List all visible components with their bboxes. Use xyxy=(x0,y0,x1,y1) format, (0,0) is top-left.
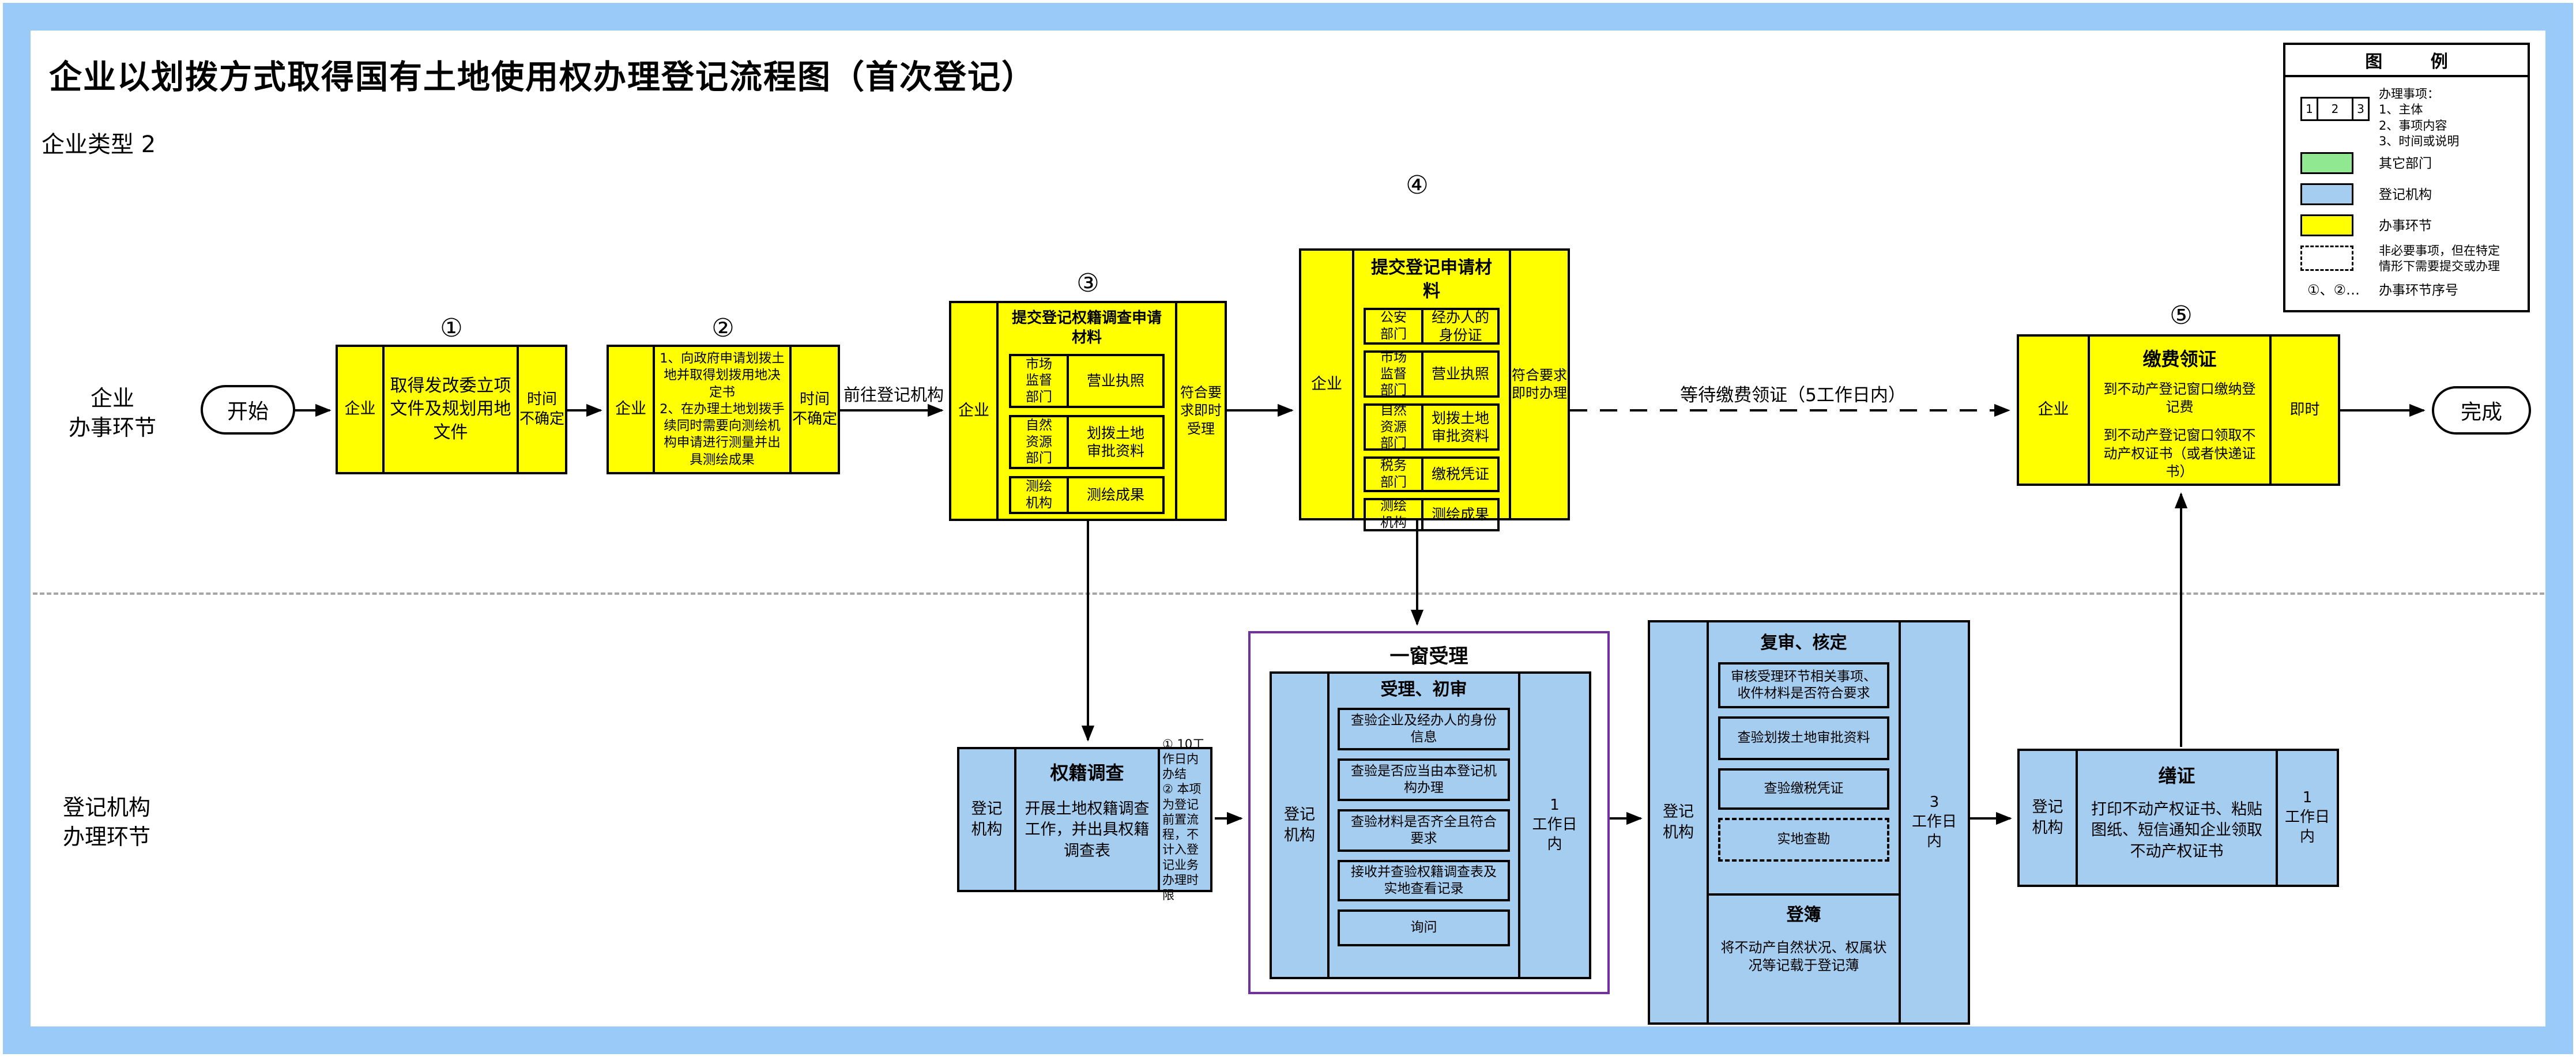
acceptance-item-materials: 查验材料是否齐全且符合要求 xyxy=(1338,809,1510,852)
survey-text: 开展土地权籍调查工作，并出具权籍调查表 xyxy=(1023,799,1151,862)
acceptance-item-inquiry: 询问 xyxy=(1338,909,1510,946)
step4-row3-doc: 划拨土地 审批资料 xyxy=(1423,406,1497,448)
legend-glyph-numbers: ①、②… xyxy=(2307,281,2360,299)
review-time: 3 工作日 内 xyxy=(1901,622,1968,1022)
step3-box: 企业 提交登记权籍调查申请材料 市场 监督 部门 营业执照 自然 资源 部门 划… xyxy=(949,301,1227,521)
legend-label-other-depts: 其它部门 xyxy=(2379,156,2432,172)
flowchart-canvas: 企业以划拨方式取得国有土地使用权办理登记流程图（首次登记） 企业类型 2 企业 … xyxy=(0,0,2576,1057)
cert-content: 缮证 打印不动产权证书、粘贴图纸、短信通知企业领取不动产权证书 xyxy=(2078,751,2278,885)
step3-row2-doc: 划拨土地 审批资料 xyxy=(1069,417,1162,467)
step5-line1: 到不动产登记窗口缴纳登记费 xyxy=(2097,380,2262,416)
cert-actor: 登记 机构 xyxy=(2020,751,2078,885)
acceptance-item-survey-table: 接收并查验权籍调查表及实地查看记录 xyxy=(1338,860,1510,901)
survey-note: ① 10工作日内办结 ② 本项为登记前置流程，不计入登记业务办理时限 xyxy=(1160,749,1210,890)
step4-row2-doc: 营业执照 xyxy=(1423,353,1497,395)
step1-time: 时间 不确定 xyxy=(519,347,565,472)
step3-row3-dept: 测绘 机构 xyxy=(1011,478,1069,512)
step2-content: 1、向政府申请划拨土地并取得划拨用地决定书 2、在办理土地划拨手续同时需要向测绘… xyxy=(655,347,792,472)
legend-sample-box: 1 2 3 xyxy=(2300,97,2370,121)
legend-swatch-green xyxy=(2300,152,2353,174)
survey-content: 权籍调查 开展土地权籍调查工作，并出具权籍调查表 xyxy=(1016,749,1160,890)
start-terminal: 开始 xyxy=(201,385,295,435)
step4-number: ④ xyxy=(1388,171,1446,200)
step5-box: 企业 缴费领证 到不动产登记窗口缴纳登记费 到不动产登记窗口领取不动产权证书（或… xyxy=(2017,334,2340,486)
step4-row-tax-receipt: 税务 部门 缴税凭证 xyxy=(1364,456,1500,492)
book-text: 将不动产自然状况、权属状况等记载于登记薄 xyxy=(1718,939,1889,975)
legend-header: 图 例 xyxy=(2285,45,2528,77)
legend-swatch-yellow xyxy=(2300,214,2353,236)
step4-row-survey-result: 测绘 机构 测绘成果 xyxy=(1364,498,1500,531)
step1-content: 取得发改委立项文件及规划用地文件 xyxy=(385,347,519,472)
cert-box: 登记 机构 缮证 打印不动产权证书、粘贴图纸、短信通知企业领取不动产权证书 1 … xyxy=(2017,749,2339,887)
acceptance-box: 登记 机构 受理、初审 查验企业及经办人的身份信息 查验是否应当由本登记机构办理… xyxy=(1270,671,1591,979)
survey-title: 权籍调查 xyxy=(1023,758,1151,785)
survey-actor: 登记 机构 xyxy=(959,749,1016,890)
step3-title: 提交登记权籍调查申请材料 xyxy=(1009,309,1165,348)
review-item-site-inspection: 实地查勘 xyxy=(1718,818,1889,862)
book-title: 登簿 xyxy=(1718,904,1889,927)
step3-row3-doc: 测绘成果 xyxy=(1069,478,1162,512)
legend: 图 例 1 2 3 办理事项： 1、主体 2、事项内容 3、时间或说明 其它部门… xyxy=(2283,43,2530,312)
step4-actor: 企业 xyxy=(1301,251,1354,518)
step4-title: 提交登记申请材料 xyxy=(1364,256,1500,303)
step5-title: 缴费领证 xyxy=(2097,345,2262,371)
book-section: 登簿 将不动产自然状况、权属状况等记载于登记薄 xyxy=(1709,893,1899,1022)
review-item-check-acceptance: 审核受理环节相关事项、收件材料是否符合要求 xyxy=(1718,662,1889,708)
cert-title: 缮证 xyxy=(2086,761,2268,788)
step5-time: 即时 xyxy=(2272,337,2338,484)
step4-row5-doc: 测绘成果 xyxy=(1423,500,1497,529)
review-item-land-approval: 查验划拨土地审批资料 xyxy=(1718,716,1889,760)
edge-label-to-registry: 前往登记机构 xyxy=(819,382,969,406)
acceptance-item-identity: 查验企业及经办人的身份信息 xyxy=(1338,708,1510,750)
step4-row2-dept: 市场 监督 部门 xyxy=(1366,353,1423,395)
review-actor: 登记 机构 xyxy=(1650,622,1709,1022)
step3-row1-doc: 营业执照 xyxy=(1069,356,1162,406)
step4-row-id-card: 公安 部门 经办人的 身份证 xyxy=(1364,308,1500,345)
step1-number: ① xyxy=(423,314,480,343)
legend-label-step-numbers: 办事环节序号 xyxy=(2379,282,2458,299)
step3-row-business-license: 市场 监督 部门 营业执照 xyxy=(1009,354,1165,408)
end-terminal: 完成 xyxy=(2432,386,2531,435)
legend-sample-note: 办理事项： 1、主体 2、事项内容 3、时间或说明 xyxy=(2379,86,2459,149)
legend-sample-1: 1 xyxy=(2302,99,2318,119)
review-title: 复审、核定 xyxy=(1718,632,1889,655)
legend-swatch-blue xyxy=(2300,183,2353,205)
acceptance-time: 1 工作日 内 xyxy=(1520,674,1589,977)
step4-row4-doc: 缴税凭证 xyxy=(1423,459,1497,490)
step3-row2-dept: 自然 资源 部门 xyxy=(1011,417,1069,467)
review-section: 复审、核定 审核受理环节相关事项、收件材料是否符合要求 查验划拨土地审批资料 查… xyxy=(1709,622,1899,893)
step3-time: 符合要 求即时 受理 xyxy=(1177,303,1225,519)
step4-row3-dept: 自然 资源 部门 xyxy=(1366,406,1423,448)
step2-box: 企业 1、向政府申请划拨土地并取得划拨用地决定书 2、在办理土地划拨手续同时需要… xyxy=(607,345,840,474)
legend-label-registry: 登记机构 xyxy=(2379,187,2432,203)
step4-row1-doc: 经办人的 身份证 xyxy=(1423,310,1497,342)
one-window-container: 一窗受理 登记 机构 受理、初审 查验企业及经办人的身份信息 查验是否应当由本登… xyxy=(1248,631,1610,994)
step5-line2: 到不动产登记窗口领取不动产权证书（或者快递证书） xyxy=(2097,426,2262,481)
step4-row-land-approval: 自然 资源 部门 划拨土地 审批资料 xyxy=(1364,403,1500,451)
step4-row5-dept: 测绘 机构 xyxy=(1366,500,1423,529)
acceptance-content: 受理、初审 查验企业及经办人的身份信息 查验是否应当由本登记机构办理 查验材料是… xyxy=(1330,674,1520,977)
step1-box: 企业 取得发改委立项文件及规划用地文件 时间 不确定 xyxy=(336,345,567,474)
acceptance-title: 受理、初审 xyxy=(1338,678,1510,702)
edge-label-wait-cert: 等待缴费领证（5工作日内） xyxy=(1620,380,1966,406)
step4-row-business-license: 市场 监督 部门 营业执照 xyxy=(1364,350,1500,398)
step1-actor: 企业 xyxy=(338,347,385,472)
survey-box: 登记 机构 权籍调查 开展土地权籍调查工作，并出具权籍调查表 ① 10工作日内办… xyxy=(957,747,1212,892)
step4-box: 企业 提交登记申请材料 公安 部门 经办人的 身份证 市场 监督 部门 营业执照… xyxy=(1299,248,1570,520)
step3-materials: 提交登记权籍调查申请材料 市场 监督 部门 营业执照 自然 资源 部门 划拨土地… xyxy=(999,303,1177,519)
legend-sample-2: 2 xyxy=(2318,99,2353,119)
step3-number: ③ xyxy=(1059,269,1117,298)
legend-sample-3: 3 xyxy=(2353,99,2368,119)
step4-materials: 提交登记申请材料 公安 部门 经办人的 身份证 市场 监督 部门 营业执照 自然… xyxy=(1354,251,1511,518)
step4-row1-dept: 公安 部门 xyxy=(1366,310,1423,342)
legend-swatch-dashed xyxy=(2300,246,2353,271)
one-window-label: 一窗受理 xyxy=(1251,633,1607,669)
review-item-tax-receipt: 查验缴税凭证 xyxy=(1718,768,1889,810)
acceptance-item-jurisdiction: 查验是否应当由本登记机构办理 xyxy=(1338,758,1510,801)
cert-text: 打印不动产权证书、粘贴图纸、短信通知企业领取不动产权证书 xyxy=(2086,799,2268,862)
step2-time: 时间 不确定 xyxy=(792,347,838,472)
step5-actor: 企业 xyxy=(2019,337,2090,484)
acceptance-actor: 登记 机构 xyxy=(1272,674,1330,977)
step4-row4-dept: 税务 部门 xyxy=(1366,459,1423,490)
cert-time: 1 工作日 内 xyxy=(2278,751,2337,885)
step5-number: ⑤ xyxy=(2152,301,2210,330)
legend-label-steps: 办事环节 xyxy=(2379,218,2432,235)
step3-row-land-approval: 自然 资源 部门 划拨土地 审批资料 xyxy=(1009,415,1165,469)
legend-label-optional: 非必要事项，但在特定 情形下需要提交或办理 xyxy=(2379,243,2500,275)
step3-actor: 企业 xyxy=(951,303,999,519)
step3-row-survey-result: 测绘 机构 测绘成果 xyxy=(1009,476,1165,514)
step4-time: 符合要求 即时办理 xyxy=(1511,251,1568,518)
step5-content: 缴费领证 到不动产登记窗口缴纳登记费 到不动产登记窗口领取不动产权证书（或者快递… xyxy=(2090,337,2272,484)
review-box: 登记 机构 复审、核定 审核受理环节相关事项、收件材料是否符合要求 查验划拨土地… xyxy=(1648,620,1970,1025)
step3-row1-dept: 市场 监督 部门 xyxy=(1011,356,1069,406)
step2-actor: 企业 xyxy=(609,347,655,472)
step2-number: ② xyxy=(694,314,752,343)
